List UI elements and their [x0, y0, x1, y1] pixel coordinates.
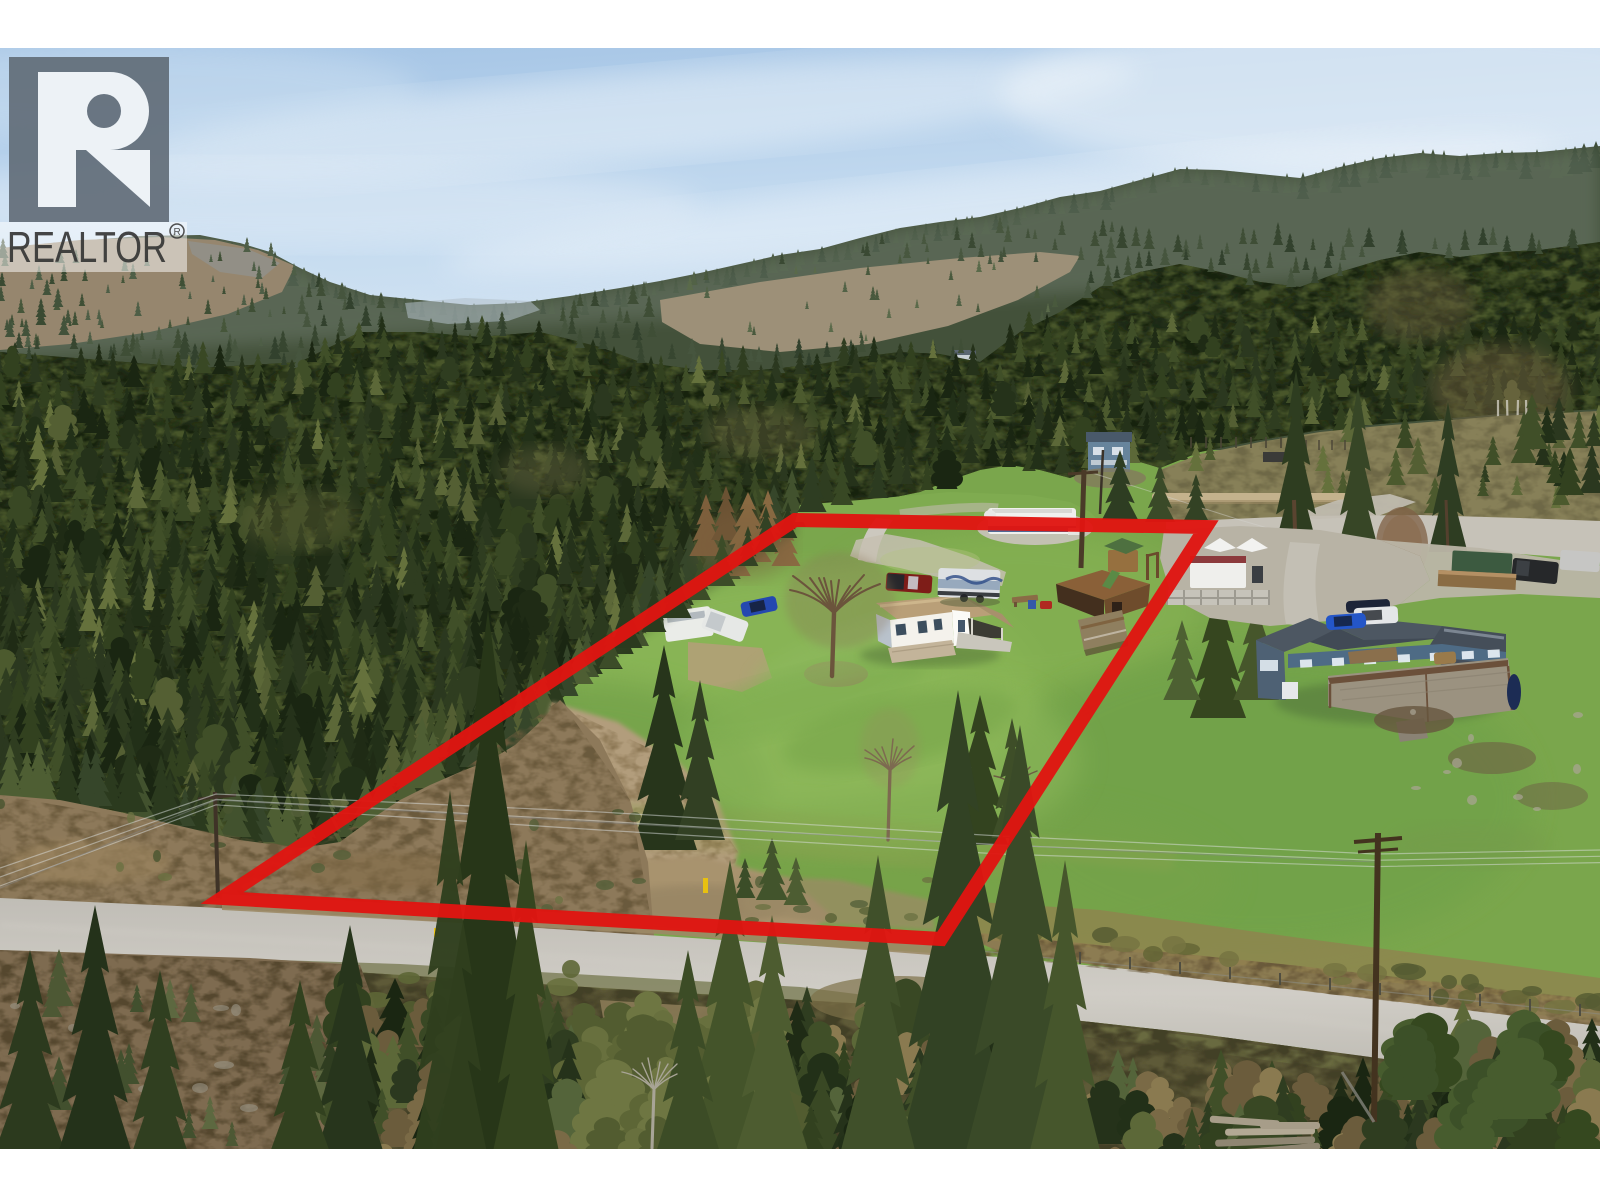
svg-text:R: R	[174, 227, 181, 238]
svg-text:REALTOR: REALTOR	[7, 223, 167, 272]
